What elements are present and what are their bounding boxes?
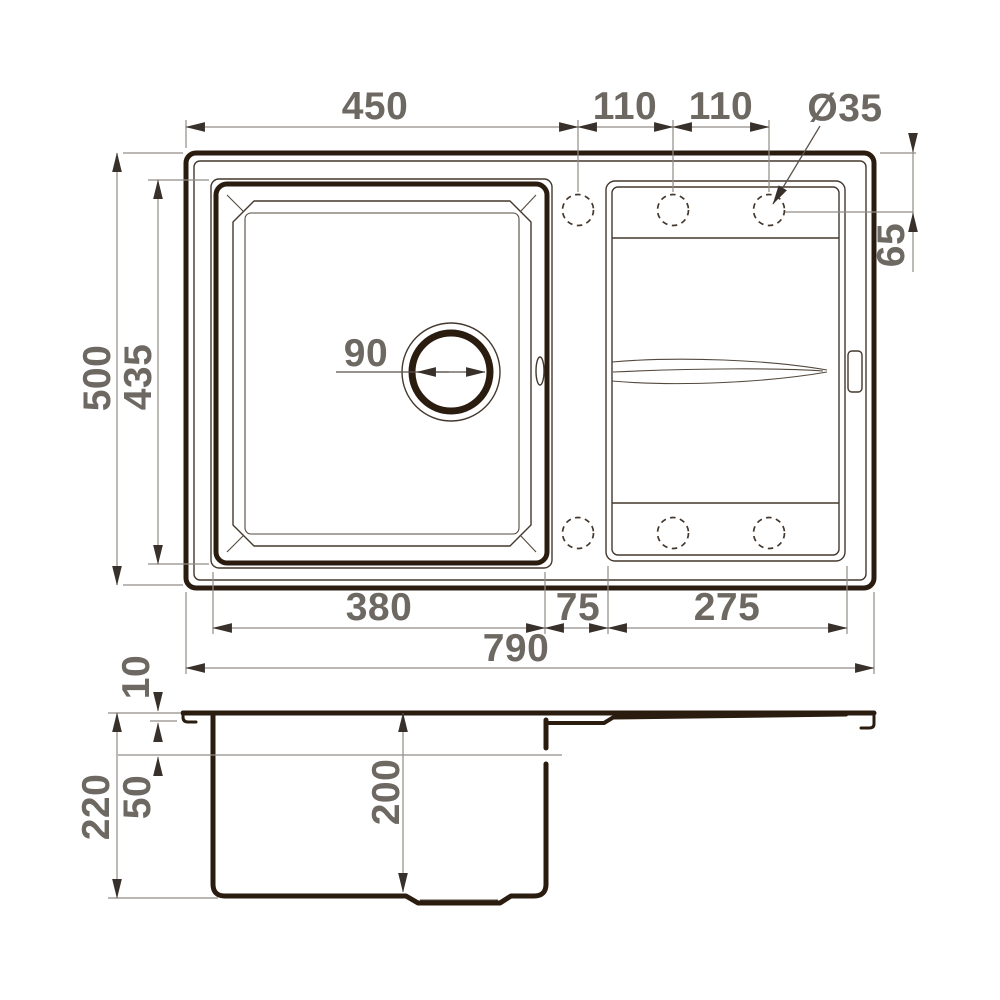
label-110-right: 110 [689,85,753,128]
section-view [118,713,874,903]
label-500: 500 [76,345,119,412]
extension-lines [108,120,916,898]
label-450: 450 [342,85,409,128]
tap-hole-bottom-3 [754,518,785,549]
label-790: 790 [483,627,550,670]
label-75: 75 [556,586,600,629]
groove-center-line [613,369,823,372]
label-380: 380 [346,586,413,629]
dimensions [108,120,916,898]
section-right-lip [861,716,874,728]
sink-technical-drawing: 450 110 110 Ø35 65 500 435 90 380 75 275… [0,0,1000,1000]
label-hole-diameter: Ø35 [807,87,882,130]
tap-hole-bottom-2 [658,518,689,549]
overflow-slot [848,351,862,392]
label-220: 220 [75,774,118,841]
label-65: 65 [870,223,913,267]
label-275: 275 [694,586,761,629]
label-200: 200 [365,759,408,826]
tap-holes [563,195,785,549]
groove-bottom-line [612,372,827,384]
label-10: 10 [115,655,158,699]
sink-inner-edge [194,161,866,580]
label-110-left: 110 [593,85,657,128]
leader-line-hole-diameter [773,126,820,204]
bowl-overflow-mark [536,357,544,385]
tap-hole-top-2 [658,195,689,226]
tap-hole-bottom-1 [563,518,594,549]
tap-hole-top-1 [563,195,594,226]
label-90: 90 [344,332,388,375]
label-435: 435 [117,344,160,411]
label-50: 50 [116,775,159,819]
dimension-labels: 450 110 110 Ø35 65 500 435 90 380 75 275… [75,85,913,840]
sink-outer-edge [186,153,874,588]
section-drainboard-surface [548,715,846,724]
plan-view [186,153,874,588]
drawing-canvas: 450 110 110 Ø35 65 500 435 90 380 75 275… [0,0,1000,1000]
tap-hole-top-3 [754,195,785,226]
drainboard-groove [612,359,827,383]
drainboard [606,181,862,561]
